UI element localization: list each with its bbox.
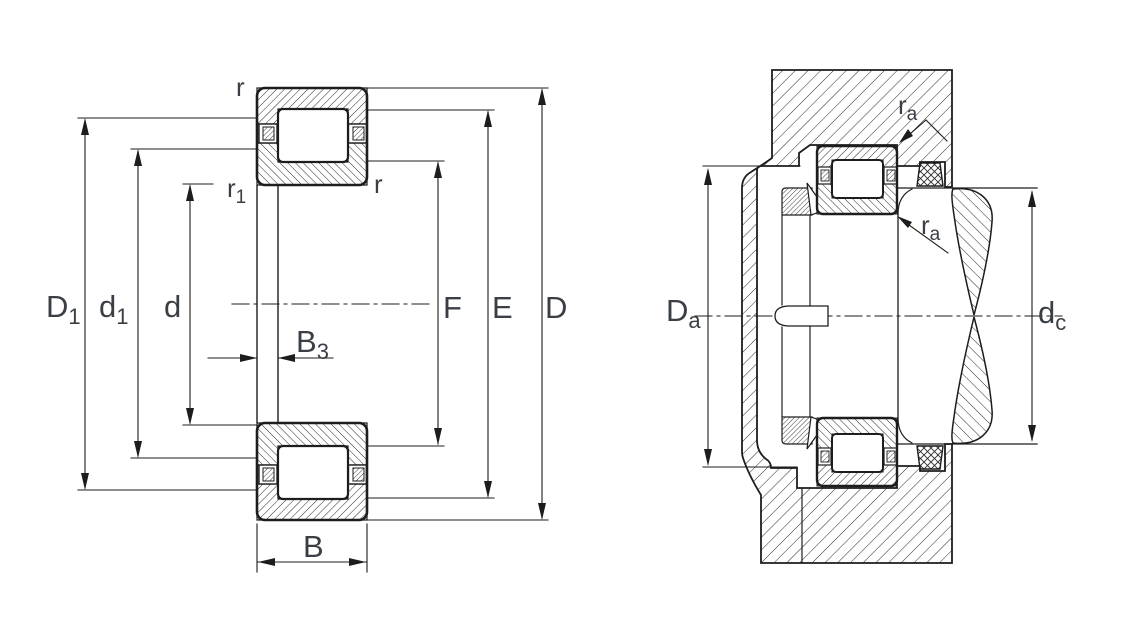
cage-bar-top-left [263,127,274,140]
arrow-B3-left [240,354,257,362]
seal-top [917,163,943,186]
dim-label-Da: Da [666,293,701,333]
mounted-roller-bottom [832,434,883,472]
arrow-dc-up [1028,190,1036,207]
arrow-D-down [538,503,546,520]
dim-label-B3: B3 [296,324,329,364]
dim-label-D: D [545,290,567,325]
dim-label-F: F [443,290,462,325]
cage-bar-bottom-right [353,468,364,481]
arrow-d-up [186,184,194,201]
radius-label-r-top: r [236,72,245,102]
arrow-Da-up [704,168,712,185]
dim-label-B: B [303,529,324,564]
cage-bar-top-right [353,127,364,140]
shaft-fillet-top [898,189,912,214]
dim-label-dc: dc [1038,295,1066,335]
dim-label-D1: D1 [46,289,81,329]
mounted-bearing-bottom [817,418,897,486]
mounted-roller-top [832,160,883,198]
arrow-B-right [349,558,366,566]
mounting-view: Da dc ra ra [666,70,1066,563]
arrow-D-up [538,88,546,105]
arrow-Da-down [704,449,712,466]
loose-rib-top [782,188,812,215]
arrow-dc-down [1028,425,1036,442]
arrow-F-down [434,428,442,445]
radius-label-r1: r1 [227,173,246,208]
arrow-d1-down [134,441,142,458]
shaft-center-hole [775,306,828,326]
mounted-cage-bar-bottom-left [821,451,829,462]
bearing-section-bottom [257,423,367,520]
loose-rib-bottom [782,417,812,444]
radius-label-r-inner: r [374,169,383,199]
bearing-section-top [257,88,367,185]
roller-top [278,109,348,162]
shaft-broken-section-top [952,189,992,315]
technical-drawing-canvas: D1 d1 d B3 B F E D r r1 r [0,0,1129,632]
mounted-cage-bar-top-right [887,170,895,181]
mounted-cage-bar-top-left [821,170,829,181]
arrow-E-up [484,110,492,127]
arrow-F-up [434,161,442,178]
dim-label-d1: d1 [99,289,129,329]
arrow-B3-right [278,354,295,362]
arrow-B-left [258,558,275,566]
roller-bottom [278,446,348,499]
cage-bar-bottom-left [263,468,274,481]
dim-label-d: d [164,289,181,324]
bearing-dimension-figure: D1 d1 d B3 B F E D r r1 r [0,0,1129,632]
arrow-D1-down [81,473,89,490]
dim-label-E: E [492,290,513,325]
shaft-broken-section-bottom [952,317,992,443]
arrow-d-down [186,408,194,425]
radius-label-ra-shaft: ra [921,210,941,245]
mounted-cage-bar-bottom-right [887,451,895,462]
bearing-cross-section-view: D1 d1 d B3 B F E D r r1 r [46,72,567,572]
mounted-bearing-top [817,146,897,214]
seal-bottom [917,446,943,469]
arrow-D1-up [81,118,89,135]
arrow-E-down [484,481,492,498]
arrow-d1-up [134,149,142,166]
shaft-fillet-bottom [898,418,912,443]
